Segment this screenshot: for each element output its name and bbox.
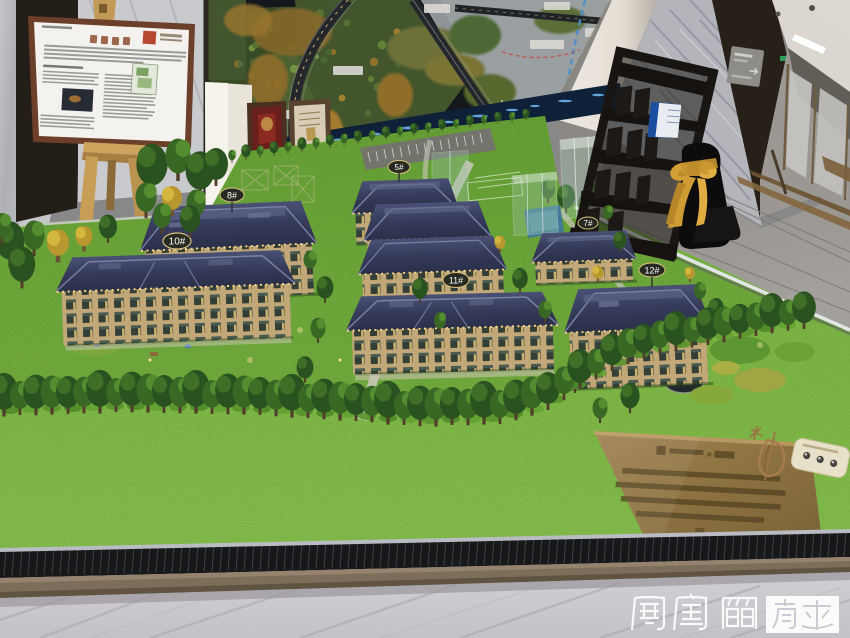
svg-text:11#: 11# bbox=[449, 276, 463, 286]
svg-text:8#: 8# bbox=[227, 191, 237, 201]
svg-text:7#: 7# bbox=[584, 219, 593, 228]
svg-text:12#: 12# bbox=[644, 266, 659, 276]
svg-text:10#: 10# bbox=[169, 237, 186, 248]
svg-text:5#: 5# bbox=[395, 163, 404, 172]
